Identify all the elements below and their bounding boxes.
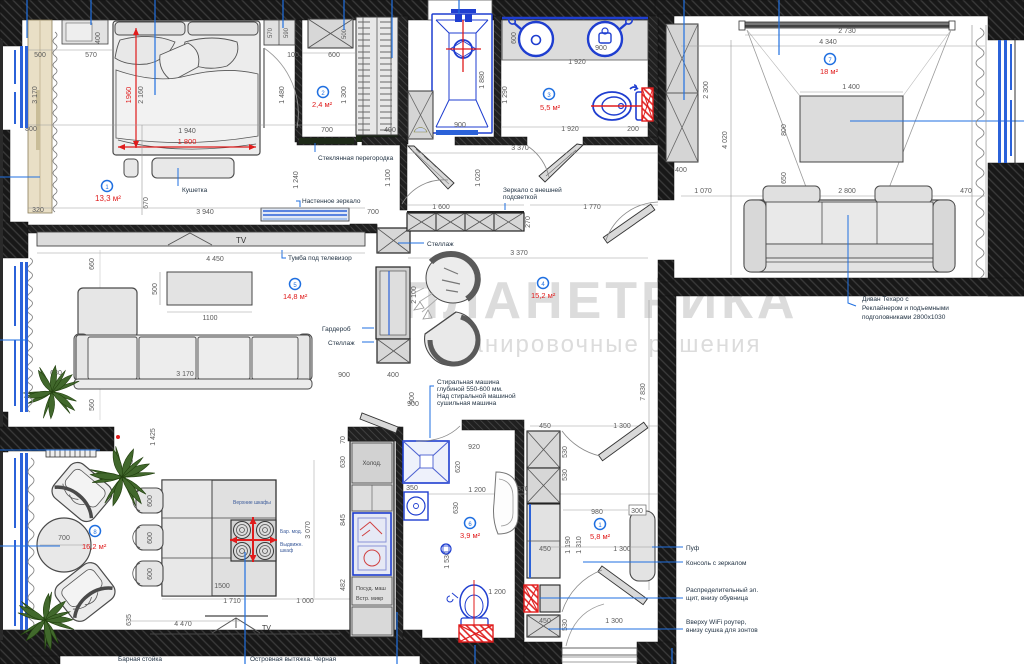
- svg-text:2 160: 2 160: [138, 86, 145, 104]
- svg-text:635: 635: [126, 614, 133, 626]
- svg-text:Вверху WiFi роутер,: Вверху WiFi роутер,: [686, 619, 747, 626]
- svg-text:650: 650: [781, 172, 788, 184]
- svg-text:4 020: 4 020: [722, 131, 729, 149]
- svg-text:270: 270: [525, 216, 532, 228]
- svg-text:Настенное зеркало: Настенное зеркало: [302, 198, 361, 205]
- svg-text:подсветкой: подсветкой: [503, 193, 537, 201]
- svg-text:TV: TV: [262, 625, 271, 632]
- svg-text:900: 900: [454, 122, 466, 129]
- svg-text:4 450: 4 450: [206, 256, 224, 263]
- svg-text:350: 350: [406, 485, 418, 492]
- svg-text:1 200: 1 200: [488, 589, 506, 596]
- svg-text:3 170: 3 170: [32, 86, 39, 104]
- svg-text:Встр. микр: Встр. микр: [356, 596, 383, 602]
- svg-text:300: 300: [631, 508, 643, 515]
- svg-text:Стиральная машина: Стиральная машина: [437, 379, 500, 386]
- svg-text:400: 400: [95, 32, 102, 44]
- svg-text:1 300: 1 300: [341, 86, 348, 104]
- svg-text:глубиной 550-600 мм.: глубиной 550-600 мм.: [437, 385, 503, 393]
- svg-text:570: 570: [268, 27, 274, 38]
- svg-text:1 190: 1 190: [565, 536, 572, 554]
- svg-text:2 100: 2 100: [411, 286, 418, 304]
- svg-text:570: 570: [85, 52, 97, 59]
- svg-text:шкаф: шкаф: [280, 548, 293, 554]
- svg-text:1100: 1100: [202, 315, 217, 322]
- svg-text:Стеллаж: Стеллаж: [427, 241, 454, 248]
- svg-text:400: 400: [384, 127, 396, 134]
- svg-text:TV: TV: [236, 236, 247, 245]
- svg-text:100: 100: [287, 52, 299, 59]
- svg-text:590: 590: [284, 27, 290, 38]
- svg-text:Стеллаж: Стеллаж: [328, 340, 355, 347]
- svg-text:13,3 м²: 13,3 м²: [95, 194, 121, 203]
- svg-text:Холод.: Холод.: [362, 461, 381, 467]
- svg-text:планировочные решения: планировочные решения: [439, 331, 762, 358]
- svg-text:700: 700: [367, 209, 379, 216]
- svg-text:600: 600: [511, 32, 518, 44]
- svg-text:4 340: 4 340: [819, 39, 837, 46]
- svg-text:845: 845: [340, 514, 347, 526]
- svg-text:14,8 м²: 14,8 м²: [283, 292, 308, 301]
- svg-text:530: 530: [562, 446, 569, 458]
- svg-text:700: 700: [58, 535, 70, 542]
- svg-text:1 480: 1 480: [279, 86, 286, 104]
- svg-text:подголовниками 2800х1030: подголовниками 2800х1030: [862, 314, 946, 321]
- svg-text:1 240: 1 240: [293, 171, 300, 189]
- svg-text:400: 400: [387, 372, 399, 379]
- svg-text:2,4 м²: 2,4 м²: [312, 100, 333, 109]
- svg-text:3,9 м²: 3,9 м²: [460, 531, 481, 540]
- svg-text:500: 500: [342, 28, 348, 39]
- svg-text:Верхние шкафы: Верхние шкафы: [233, 500, 271, 506]
- svg-text:450: 450: [539, 423, 551, 430]
- svg-text:3 940: 3 940: [196, 209, 214, 216]
- svg-text:620: 620: [455, 461, 462, 473]
- svg-text:Над стиральной машиной: Над стиральной машиной: [437, 392, 516, 400]
- svg-text:900: 900: [407, 401, 419, 408]
- svg-text:16,2 м²: 16,2 м²: [82, 542, 107, 551]
- svg-text:1 200: 1 200: [468, 487, 486, 494]
- svg-text:670: 670: [143, 197, 150, 209]
- svg-text:15,2 м²: 15,2 м²: [531, 291, 556, 300]
- svg-text:600: 600: [147, 532, 154, 544]
- svg-text:400: 400: [675, 167, 687, 174]
- svg-text:500: 500: [34, 52, 46, 59]
- svg-text:1 425: 1 425: [150, 428, 157, 446]
- svg-text:Гардероб: Гардероб: [322, 325, 351, 333]
- svg-text:1960: 1960: [124, 87, 133, 104]
- svg-text:900: 900: [595, 45, 607, 52]
- svg-text:1 310: 1 310: [576, 536, 583, 554]
- svg-text:сушильная машина: сушильная машина: [437, 400, 497, 407]
- svg-text:660: 660: [89, 258, 96, 270]
- svg-text:5,8 м²: 5,8 м²: [590, 532, 611, 541]
- svg-text:920: 920: [468, 444, 480, 451]
- svg-text:2 800: 2 800: [838, 188, 856, 195]
- svg-text:2 730: 2 730: [838, 28, 856, 35]
- svg-text:1 880: 1 880: [479, 71, 486, 89]
- svg-text:1 100: 1 100: [385, 169, 392, 187]
- svg-text:700: 700: [321, 127, 333, 134]
- svg-text:3 070: 3 070: [305, 521, 312, 539]
- svg-text:Барная стойка: Барная стойка: [118, 655, 162, 663]
- svg-text:3 170: 3 170: [176, 371, 194, 378]
- svg-text:600: 600: [147, 495, 154, 507]
- svg-text:900: 900: [338, 372, 350, 379]
- svg-text:1500: 1500: [214, 583, 230, 590]
- svg-text:560: 560: [89, 399, 96, 411]
- svg-text:800: 800: [781, 124, 788, 136]
- svg-text:470: 470: [960, 188, 972, 195]
- svg-text:Островная вытяжка. Черная: Островная вытяжка. Черная: [250, 656, 336, 663]
- svg-text:Консоль с зеркалом: Консоль с зеркалом: [686, 560, 747, 567]
- svg-text:70: 70: [340, 436, 347, 444]
- svg-text:630: 630: [340, 456, 347, 468]
- svg-text:1 290: 1 290: [502, 86, 509, 104]
- svg-text:Кушетка: Кушетка: [182, 187, 208, 194]
- svg-text:2 300: 2 300: [703, 81, 710, 99]
- svg-text:Распределительный эл.: Распределительный эл.: [686, 586, 758, 594]
- svg-text:Диван Техаро с: Диван Техаро с: [862, 296, 909, 303]
- svg-text:1 800: 1 800: [178, 137, 197, 146]
- svg-text:530: 530: [562, 469, 569, 481]
- svg-text:Реклайнером и подъемными: Реклайнером и подъемными: [862, 304, 949, 312]
- svg-text:4 470: 4 470: [174, 621, 192, 628]
- svg-text:Пуф: Пуф: [686, 545, 700, 552]
- svg-text:3 370: 3 370: [510, 250, 528, 257]
- svg-text:1 020: 1 020: [475, 169, 482, 187]
- svg-text:Посуд. маш: Посуд. маш: [356, 586, 386, 592]
- svg-text:482: 482: [340, 579, 347, 591]
- svg-text:Зеркало с внешней: Зеркало с внешней: [503, 186, 562, 194]
- svg-text:18 м²: 18 м²: [820, 67, 839, 76]
- svg-text:1 300: 1 300: [613, 423, 631, 430]
- svg-text:630: 630: [453, 502, 460, 514]
- svg-text:Тумба под телевизор: Тумба под телевизор: [288, 254, 352, 262]
- svg-text:1 070: 1 070: [694, 188, 712, 195]
- svg-text:500: 500: [152, 283, 159, 295]
- svg-text:Стеклянная перегородка: Стеклянная перегородка: [318, 155, 394, 162]
- svg-text:внизу сушка для зонтов: внизу сушка для зонтов: [686, 627, 758, 634]
- svg-text:1 940: 1 940: [178, 128, 196, 135]
- svg-text:1 400: 1 400: [842, 84, 860, 91]
- svg-text:7 830: 7 830: [640, 383, 647, 401]
- svg-text:5,5 м²: 5,5 м²: [540, 103, 561, 112]
- svg-text:1 300: 1 300: [605, 618, 623, 625]
- svg-text:3 370: 3 370: [511, 145, 529, 152]
- svg-text:Бар. мод.: Бар. мод.: [280, 529, 302, 535]
- svg-text:600: 600: [147, 568, 154, 580]
- svg-text:щит, внизу обувница: щит, внизу обувница: [686, 594, 748, 602]
- svg-text:450: 450: [539, 618, 551, 625]
